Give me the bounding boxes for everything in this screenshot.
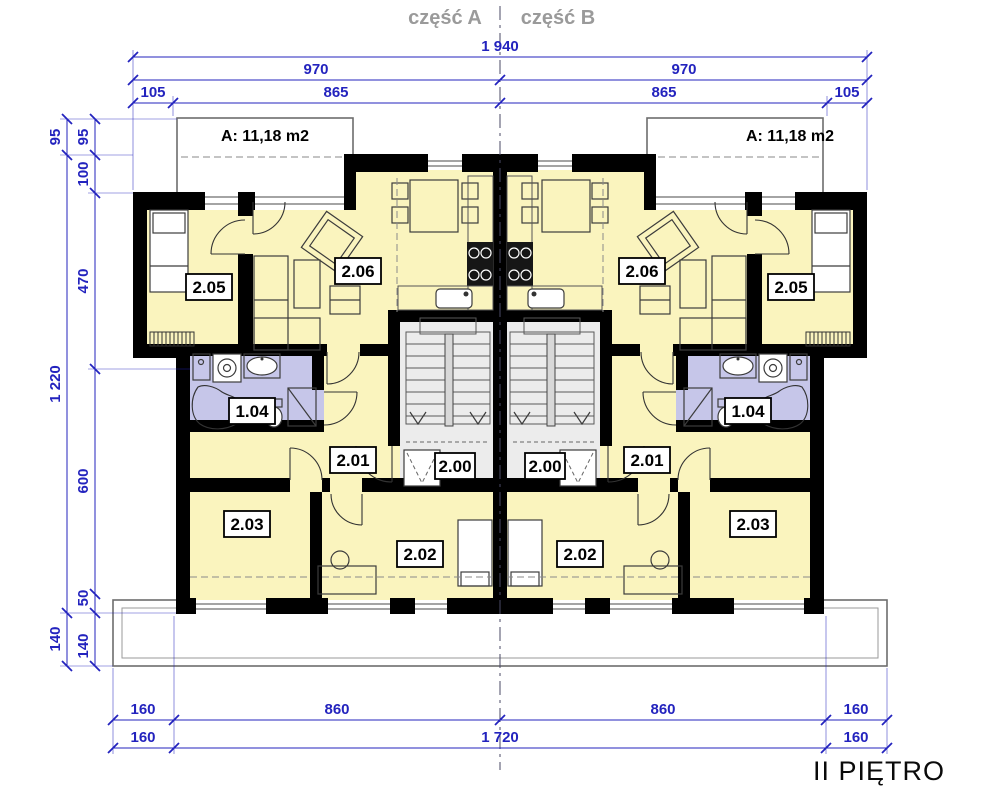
dim-bottom-seg: 160: [130, 701, 155, 718]
svg-text:2.05: 2.05: [774, 278, 807, 297]
dim-left-inner: 470: [75, 268, 92, 293]
room-label: 2.02: [557, 541, 603, 567]
floor-title: II PIĘTRO: [813, 756, 945, 786]
room-label: 2.05: [186, 274, 232, 300]
svg-text:2.01: 2.01: [630, 451, 663, 470]
dim-bottom-seg: 160: [843, 701, 868, 718]
balcony-area-label-right: A: 11,18 m2: [746, 128, 834, 145]
dim-left-outer: 140: [47, 626, 64, 651]
svg-text:2.02: 2.02: [403, 545, 436, 564]
svg-text:2.01: 2.01: [336, 451, 369, 470]
dim-total-width: 1 940: [481, 38, 519, 55]
svg-text:2.00: 2.00: [438, 457, 471, 476]
dim-left-inner: 95: [75, 129, 92, 146]
unit-a-geometry: [133, 118, 500, 614]
part-a-title: część A: [408, 7, 482, 29]
svg-text:1.04: 1.04: [731, 402, 765, 421]
room-label: 2.00: [435, 453, 475, 479]
svg-text:2.03: 2.03: [230, 515, 263, 534]
dim-unit-a-width: 970: [303, 61, 328, 78]
unit-b-geometry: [500, 118, 867, 614]
room-label: 1.04: [229, 398, 275, 424]
dim-left-inner: 50: [75, 590, 92, 607]
dim-left-inner: 140: [75, 633, 92, 658]
dim-bottom-seg: 860: [324, 701, 349, 718]
part-b-title: część B: [521, 7, 596, 29]
room-label: 2.02: [397, 541, 443, 567]
dim-unit-b-width: 970: [671, 61, 696, 78]
dim-top-seg: 105: [834, 84, 859, 101]
room-label: 2.01: [330, 447, 376, 473]
room-label: 2.05: [768, 274, 814, 300]
svg-text:2.06: 2.06: [341, 262, 374, 281]
room-label: 1.04: [725, 398, 771, 424]
svg-text:2.00: 2.00: [528, 457, 561, 476]
floor-plan-canvas: A: 11,18 m2 A: 11,18 m2 2.05 2.06 1.04 2…: [0, 0, 1000, 800]
svg-text:2.05: 2.05: [192, 278, 225, 297]
dim-bottom-seg: 160: [843, 729, 868, 746]
svg-text:2.02: 2.02: [563, 545, 596, 564]
dim-left-inner: 600: [75, 468, 92, 493]
floor-plan-page: A: 11,18 m2 A: 11,18 m2 2.05 2.06 1.04 2…: [0, 0, 1000, 800]
room-label: 2.01: [624, 447, 670, 473]
dim-left-inner: 100: [75, 161, 92, 186]
svg-text:2.03: 2.03: [736, 515, 769, 534]
balcony-area-label-left: A: 11,18 m2: [221, 128, 309, 145]
dim-left-outer: 95: [47, 129, 64, 146]
dim-bottom-seg: 860: [650, 701, 675, 718]
room-label: 2.03: [730, 511, 776, 537]
dim-top-seg: 865: [651, 84, 676, 101]
room-label: 2.03: [224, 511, 270, 537]
dim-left-outer: 1 220: [47, 365, 64, 403]
dim-top-seg: 865: [323, 84, 348, 101]
room-label: 2.00: [525, 453, 565, 479]
room-label: 2.06: [335, 258, 381, 284]
room-label: 2.06: [619, 258, 665, 284]
svg-text:1.04: 1.04: [235, 402, 269, 421]
dim-bottom-total: 1 720: [481, 729, 519, 746]
svg-text:2.06: 2.06: [625, 262, 658, 281]
dim-bottom-seg: 160: [130, 729, 155, 746]
dim-top-seg: 105: [140, 84, 165, 101]
